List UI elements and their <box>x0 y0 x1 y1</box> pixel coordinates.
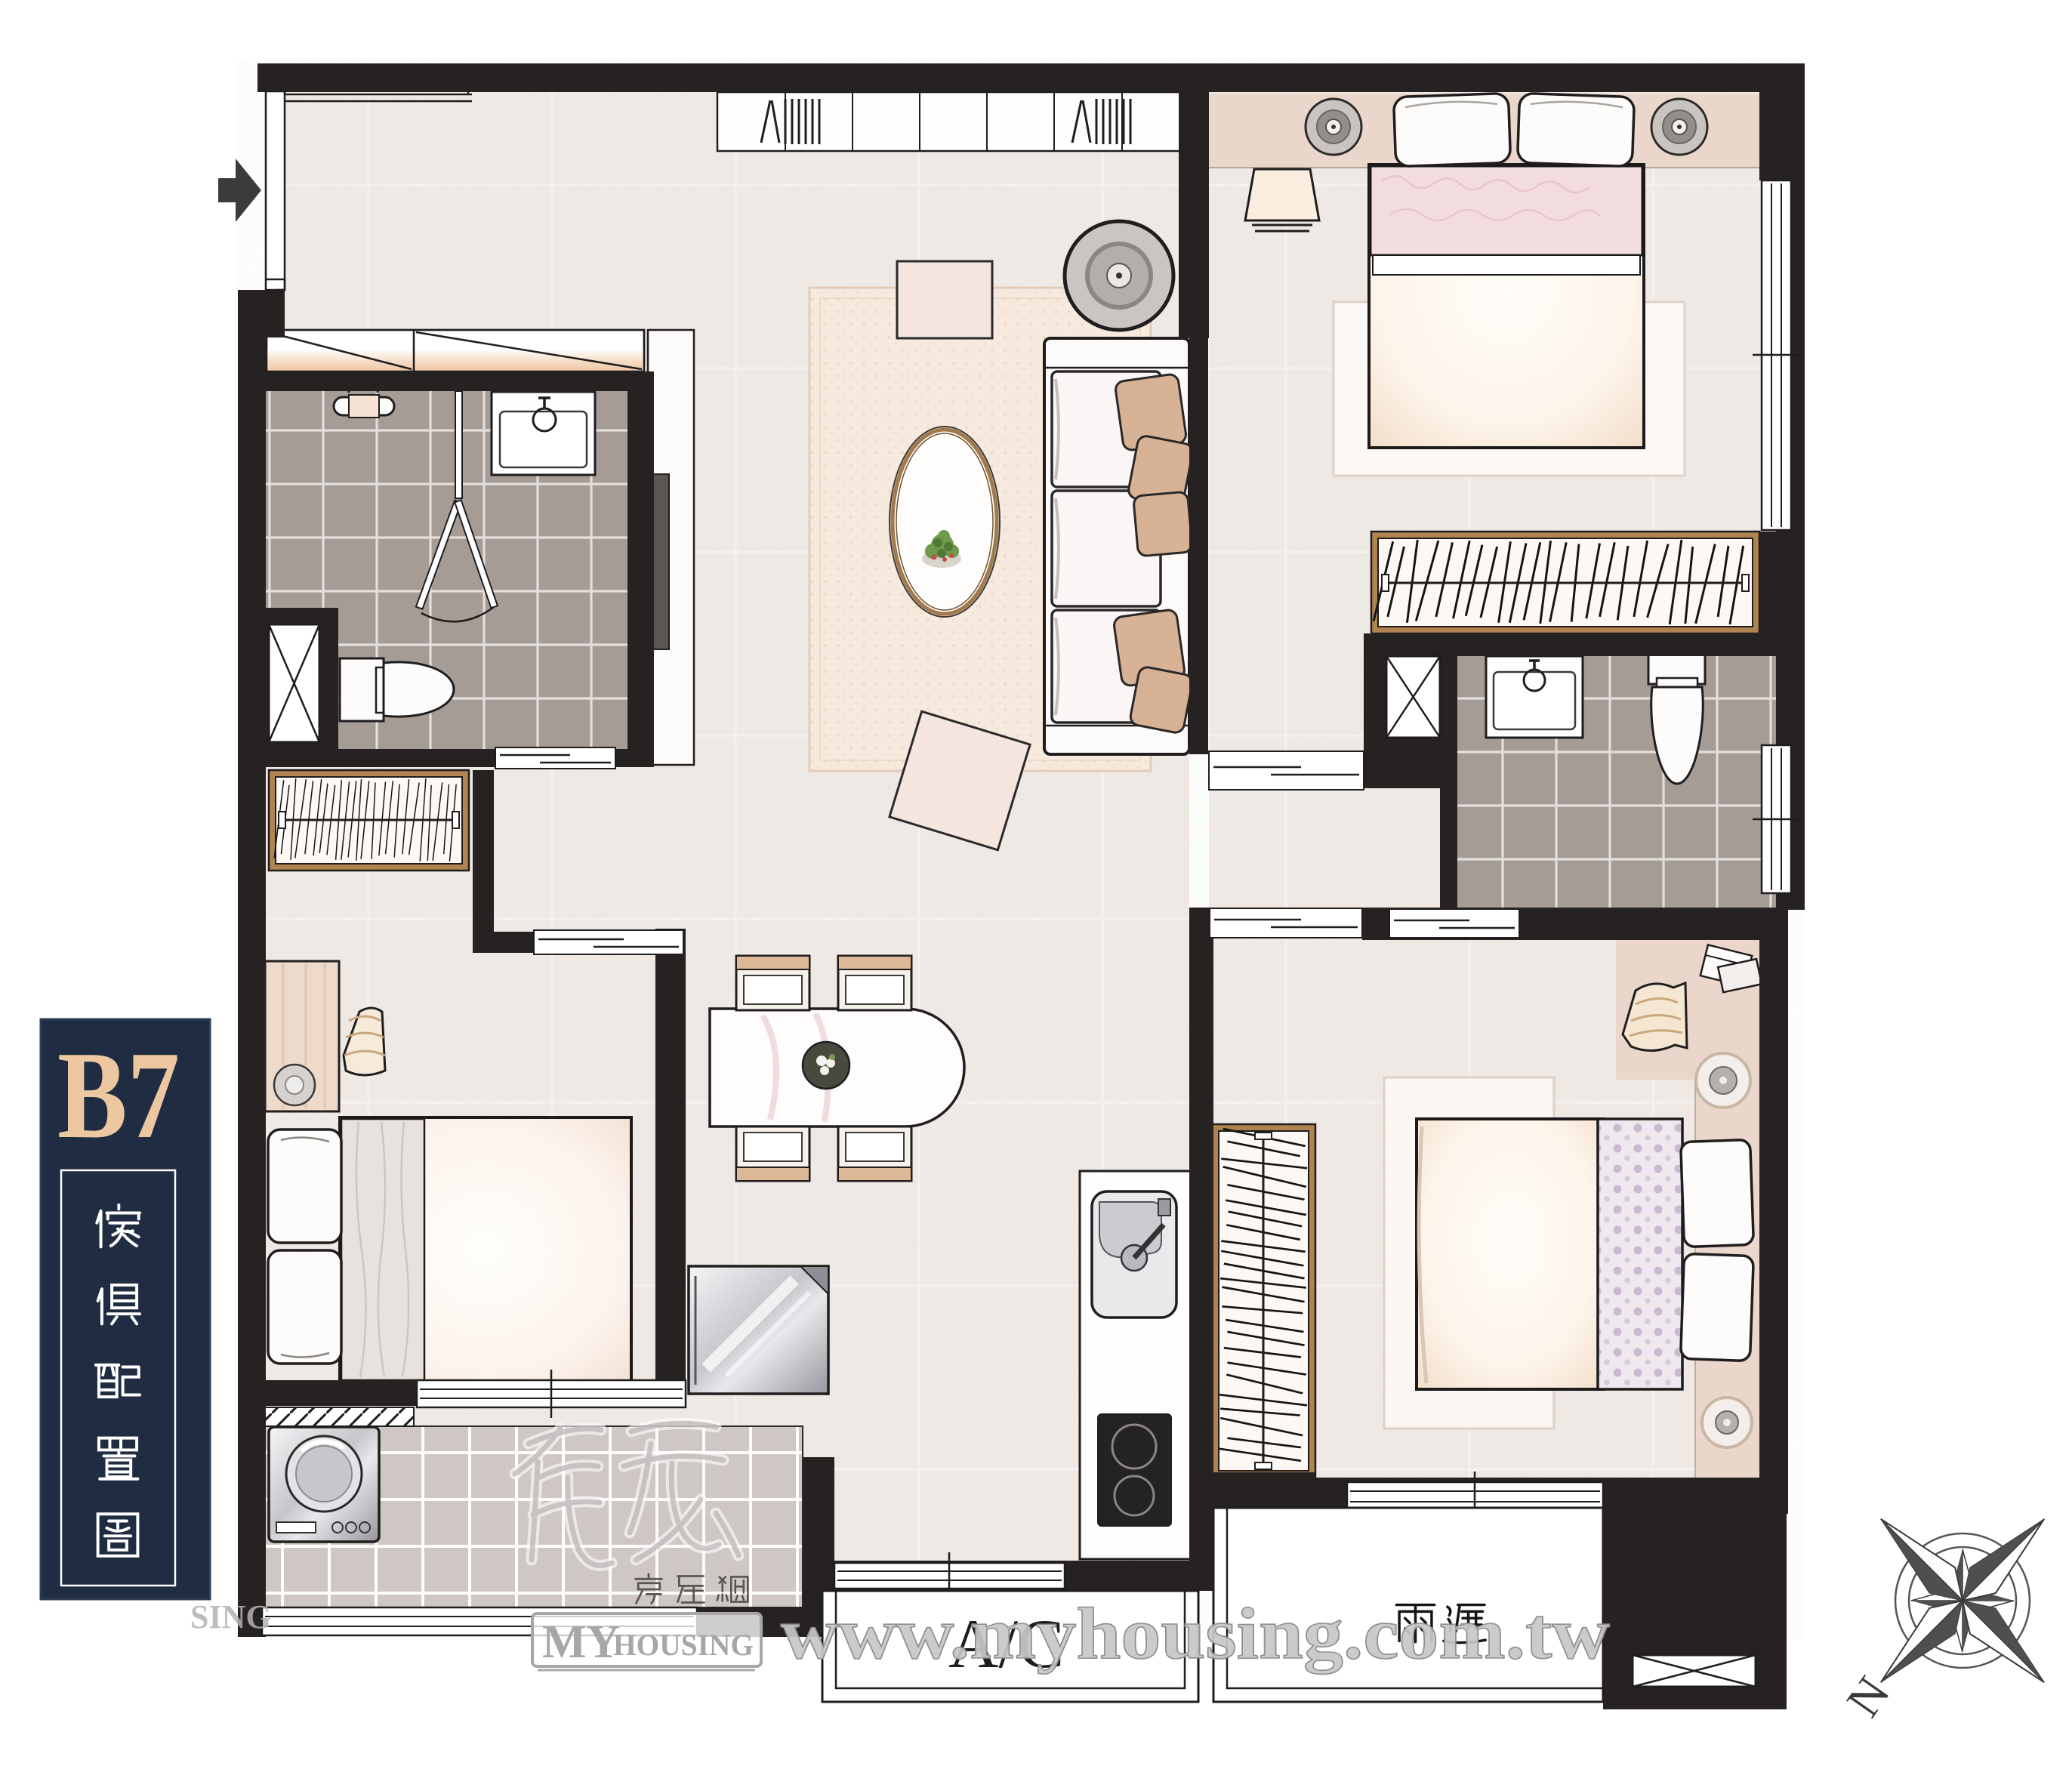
svg-text:B7: B7 <box>57 1025 180 1164</box>
svg-text:HOUSING: HOUSING <box>613 1628 754 1662</box>
svg-text:MY: MY <box>542 1617 620 1668</box>
svg-text:SING: SING <box>190 1598 272 1635</box>
svg-text:www.myhousing.com.tw: www.myhousing.com.tw <box>781 1593 1610 1674</box>
